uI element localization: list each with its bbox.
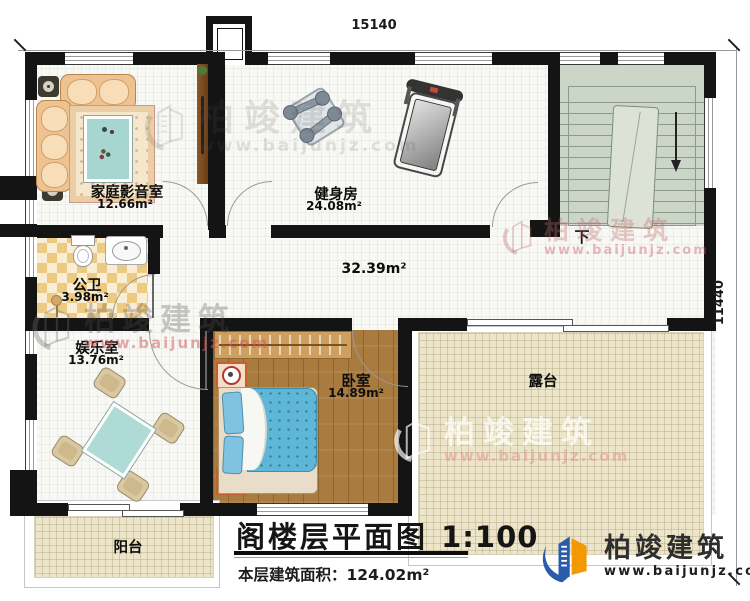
wall-segment	[548, 52, 560, 230]
wall-segment	[209, 225, 226, 238]
door-leaf	[205, 331, 207, 389]
window	[618, 52, 664, 65]
title-underline	[234, 551, 468, 555]
brand-logo: 柏竣建筑 www.baijunjz.com	[536, 528, 750, 588]
room-area-theater: 12.66m²	[97, 197, 153, 211]
plan-scale: 1:100	[441, 520, 538, 554]
door-leaf	[152, 274, 154, 318]
title-underline-thin	[234, 557, 468, 558]
room-label-balcony: 阳台	[114, 536, 143, 557]
brand-logo-url: www.baijunjz.com	[604, 564, 750, 581]
wall-segment	[208, 52, 225, 230]
brand-logo-name: 柏竣建筑	[604, 535, 750, 562]
dimension-top-value: 15140	[351, 18, 396, 33]
window	[704, 98, 716, 188]
dimension-line-right	[736, 46, 737, 586]
wall-segment	[407, 318, 467, 331]
stair-arrow-line	[675, 112, 677, 162]
wall-segment	[25, 503, 68, 516]
bed	[218, 387, 318, 494]
game-table	[82, 402, 156, 478]
room-area-play: 13.76m²	[68, 353, 124, 367]
dimension-line-top	[18, 50, 736, 51]
wall-segment	[667, 318, 716, 331]
window	[25, 200, 37, 224]
wall-segment	[330, 52, 415, 65]
coffee-table	[84, 116, 132, 182]
stair-arrow-head	[671, 160, 681, 172]
dimension-right-value: 11440	[712, 280, 727, 325]
floor-plan-page: 下	[0, 0, 750, 601]
nightstand	[216, 362, 247, 389]
window	[560, 52, 600, 65]
balcony-sliding-door	[122, 510, 184, 517]
floor-area-note: 本层建筑面积：124.02m²	[238, 563, 429, 585]
speaker	[38, 76, 59, 97]
tv-screen-wall	[197, 64, 208, 184]
wall-segment	[704, 52, 716, 98]
sofa-left	[36, 100, 72, 192]
room-area-gym: 24.08m²	[306, 199, 362, 213]
room-label-terrace: 露台	[529, 370, 558, 391]
wall-segment	[148, 237, 160, 274]
floor-area-value: 124.02m²	[347, 566, 430, 584]
pillow	[222, 391, 245, 434]
window	[415, 52, 492, 65]
staircase	[560, 64, 704, 226]
wall-segment	[25, 318, 149, 331]
balcony-sliding-door	[68, 504, 130, 511]
plan-title: 阁楼层平面图 1:100	[236, 514, 538, 556]
wall-segment	[25, 52, 37, 100]
floor-area-label: 本层建筑面积：	[238, 566, 347, 584]
wall-segment	[25, 354, 37, 420]
wall-pier	[0, 176, 37, 200]
sofa-chaise	[60, 74, 136, 110]
wall-segment	[271, 225, 490, 238]
window	[25, 237, 37, 277]
stair-center-void	[607, 105, 659, 229]
window	[25, 420, 37, 470]
wardrobe	[214, 331, 352, 359]
window	[65, 52, 133, 65]
sink	[105, 236, 147, 265]
stair-break-line	[622, 112, 641, 223]
brand-logo-icon	[536, 528, 596, 588]
wall-segment	[600, 52, 618, 65]
room-area-bath: 3.98m²	[61, 290, 108, 304]
stair-down-label: 下	[574, 226, 589, 247]
window	[25, 330, 37, 354]
hall-area: 32.39m²	[341, 261, 406, 277]
terrace-sliding-door	[467, 319, 573, 326]
wall-segment	[207, 318, 352, 331]
wall-segment	[252, 52, 268, 65]
window	[268, 52, 330, 65]
pillow	[222, 436, 244, 475]
wall-pier	[0, 224, 37, 237]
terrace-sliding-door	[563, 325, 669, 332]
room-area-bedroom: 14.89m²	[328, 386, 384, 400]
plan-title-text: 阁楼层平面图	[236, 520, 428, 554]
